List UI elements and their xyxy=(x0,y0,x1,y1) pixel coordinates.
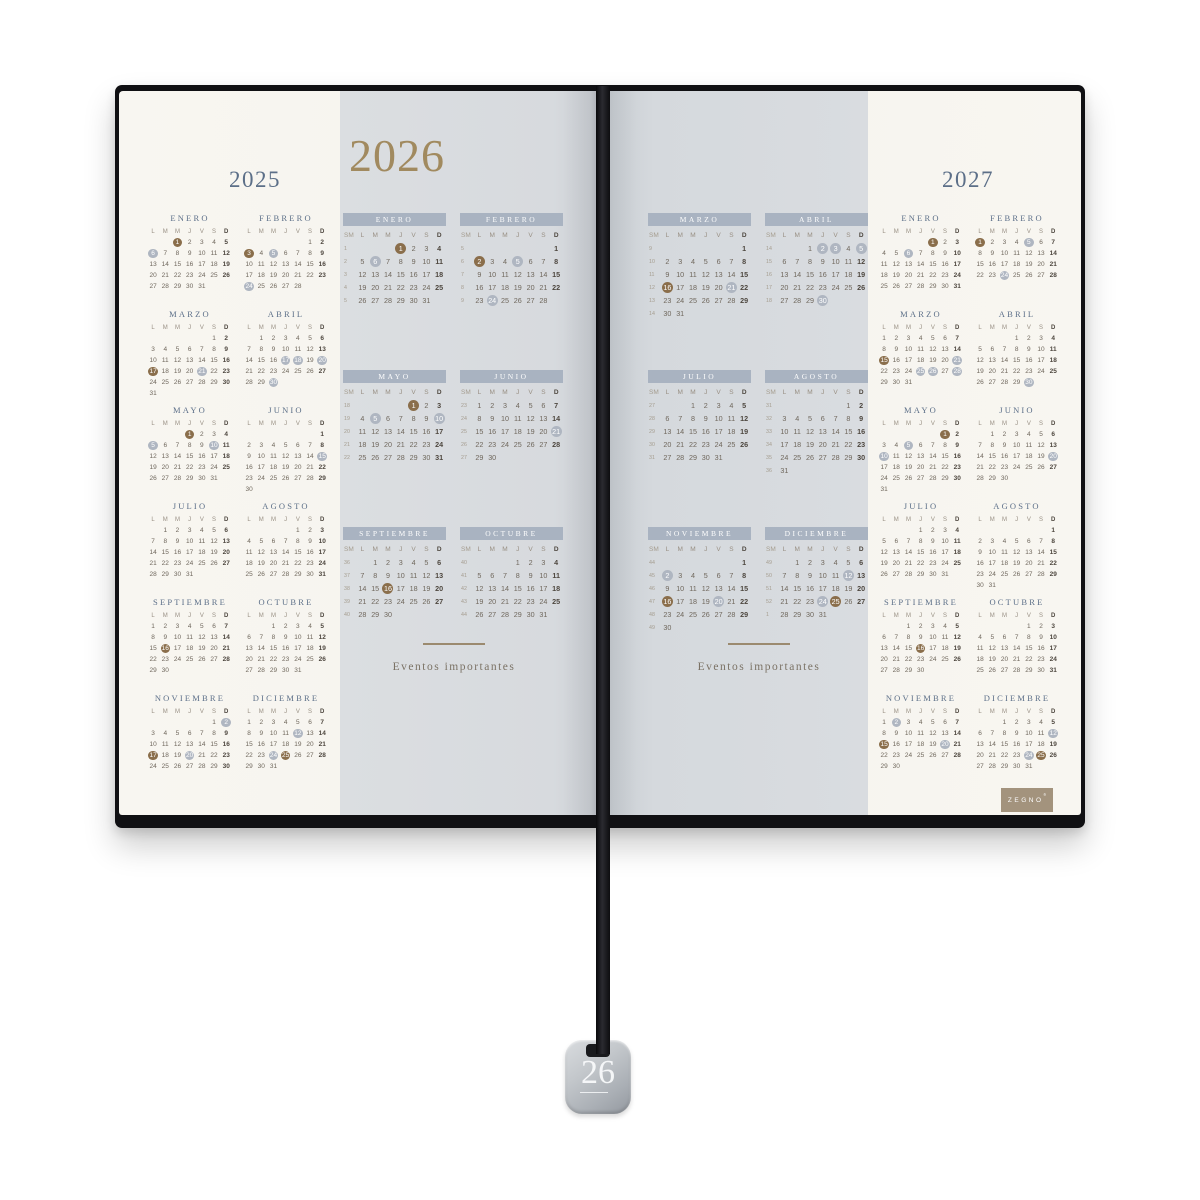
weekday-label: M xyxy=(385,389,390,396)
day-cell: 16 xyxy=(857,427,865,436)
day-cell: 3 xyxy=(200,239,204,246)
day-cell: 24 xyxy=(989,571,996,578)
month-day-grid: SMLMMJVSD1812319456789102011121314151617… xyxy=(343,386,446,464)
weekday-label: M xyxy=(677,389,682,396)
day-cell: 31 xyxy=(676,309,684,318)
day-cell: 5 xyxy=(990,634,994,641)
weekday-label: S xyxy=(729,389,733,396)
charm-number: 26 xyxy=(565,1055,631,1091)
weekday-label: L xyxy=(978,709,981,715)
day-cell: 6 xyxy=(247,634,251,641)
day-cell: 5 xyxy=(212,527,216,534)
day-cell: 24 xyxy=(817,596,828,607)
weekday-label: M xyxy=(175,709,180,715)
day-cell: 18 xyxy=(162,752,169,759)
day-cell: 23 xyxy=(198,464,205,471)
day-cell: 24 xyxy=(149,379,156,386)
day-cell: 28 xyxy=(1001,379,1008,386)
weekday-label: M xyxy=(690,232,695,239)
week-number: 45 xyxy=(648,573,655,579)
day-cell: 15 xyxy=(879,356,889,366)
day-cell: 21 xyxy=(929,464,936,471)
day-cell: 18 xyxy=(976,656,983,663)
day-cell: 27 xyxy=(857,597,865,606)
day-cell: 28 xyxy=(727,610,735,619)
month-title: FEBRERO xyxy=(974,213,1060,223)
day-cell: 14 xyxy=(198,741,205,748)
day-cell: 31 xyxy=(422,296,430,305)
day-cell: 1 xyxy=(554,244,558,253)
day-cell: 3 xyxy=(1003,239,1007,246)
day-cell: 16 xyxy=(989,261,996,268)
month-enero: ENEROLMMJVSD1234567891011121314151617181… xyxy=(147,213,233,309)
weekday-label: M xyxy=(163,421,168,427)
day-cell: 2 xyxy=(221,718,231,728)
weekday-label: M xyxy=(163,709,168,715)
day-cell: 20 xyxy=(905,272,912,279)
weekday-label: S xyxy=(308,709,312,715)
weekday-label: J xyxy=(919,229,922,235)
day-cell: 28 xyxy=(294,283,301,290)
day-cell: 1 xyxy=(846,401,850,410)
day-cell: 14 xyxy=(1013,645,1020,652)
day-cell: 14 xyxy=(198,357,205,364)
day-cell: 19 xyxy=(514,283,522,292)
day-cell: 2 xyxy=(412,244,416,253)
day-cell: 10 xyxy=(488,270,496,279)
day-cell: 9 xyxy=(859,414,863,423)
weekday-label: M xyxy=(372,546,377,553)
day-cell: 5 xyxy=(808,414,812,423)
day-cell: 30 xyxy=(941,283,948,290)
day-cell: 18 xyxy=(293,356,303,366)
day-cell: 13 xyxy=(435,571,443,580)
day-cell: 12 xyxy=(929,730,936,737)
day-cell: 11 xyxy=(211,250,218,257)
day-cell: 26 xyxy=(893,283,900,290)
day-cell: 7 xyxy=(919,250,923,257)
weekday-label: J xyxy=(821,389,824,396)
day-cell: 6 xyxy=(188,346,192,353)
day-cell: 23 xyxy=(258,752,265,759)
day-cell: 17 xyxy=(954,261,961,268)
day-cell: 15 xyxy=(245,741,252,748)
day-cell: 11 xyxy=(793,427,800,436)
weekday-label: V xyxy=(200,709,204,715)
day-cell: 19 xyxy=(976,368,983,375)
day-cell: 16 xyxy=(941,261,948,268)
month-title: OCTUBRE xyxy=(460,527,563,540)
day-cell: 4 xyxy=(554,558,558,567)
day-cell: 23 xyxy=(893,368,900,375)
day-cell: 27 xyxy=(149,283,156,290)
day-cell: 26 xyxy=(306,368,313,375)
day-cell: 9 xyxy=(224,346,228,353)
day-cell: 15 xyxy=(270,645,277,652)
week-number: 14 xyxy=(765,246,772,252)
day-cell: 1 xyxy=(373,558,377,567)
weekday-label: S xyxy=(541,232,545,239)
day-cell: 29 xyxy=(941,475,948,482)
weekday-label: L xyxy=(247,517,250,523)
day-cell: 30 xyxy=(245,486,252,493)
day-cell: 3 xyxy=(821,558,825,567)
day-cell: 27 xyxy=(989,379,996,386)
day-cell: 3 xyxy=(212,431,216,438)
day-cell: 7 xyxy=(955,335,959,342)
week-number: 52 xyxy=(765,599,772,605)
day-cell: 27 xyxy=(245,667,252,674)
week-column-header: SM xyxy=(648,546,659,553)
week-number: 35 xyxy=(765,455,772,461)
day-cell: 18 xyxy=(501,283,509,292)
day-cell: 3 xyxy=(830,243,841,254)
weekday-label: M xyxy=(259,709,264,715)
day-cell: 20 xyxy=(245,656,252,663)
day-cell: 23 xyxy=(527,597,535,606)
day-cell: 12 xyxy=(371,427,379,436)
day-cell: 26 xyxy=(928,367,938,377)
day-cell: 22 xyxy=(174,272,181,279)
day-cell: 23 xyxy=(245,475,252,482)
day-cell: 21 xyxy=(893,656,900,663)
week-number: 16 xyxy=(765,272,772,278)
week-number: 14 xyxy=(648,311,655,317)
day-cell: 11 xyxy=(689,270,696,279)
weekday-label: L xyxy=(151,421,154,427)
day-cell: 14 xyxy=(1001,357,1008,364)
day-cell: 30 xyxy=(929,571,936,578)
weekday-label: L xyxy=(666,389,670,396)
day-cell: 9 xyxy=(490,414,494,423)
month-title: OCTUBRE xyxy=(974,597,1060,607)
weekday-label: D xyxy=(955,517,959,523)
day-cell: 17 xyxy=(880,464,887,471)
weekday-label: L xyxy=(882,325,885,331)
day-cell: 24 xyxy=(487,295,498,306)
day-cell: 3 xyxy=(503,401,507,410)
weekday-label: D xyxy=(955,421,959,427)
day-cell: 5 xyxy=(424,558,428,567)
day-cell: 25 xyxy=(258,283,265,290)
weekday-label: V xyxy=(1027,325,1031,331)
weekday-label: J xyxy=(1015,229,1018,235)
day-cell: 5 xyxy=(200,623,204,630)
weekday-label: L xyxy=(151,613,154,619)
day-cell: 8 xyxy=(808,257,812,266)
day-cell: 23 xyxy=(1013,752,1020,759)
weekday-label: M xyxy=(990,517,995,523)
weekday-label: J xyxy=(284,709,287,715)
day-cell: 27 xyxy=(186,763,193,770)
day-cell: 11 xyxy=(501,270,508,279)
weekday-label: L xyxy=(478,546,482,553)
weekday-label: V xyxy=(528,232,532,239)
day-cell: 22 xyxy=(258,368,265,375)
weekday-label: V xyxy=(296,613,300,619)
day-cell: 24 xyxy=(539,597,547,606)
month-abril: ABRILLMMJVSD1234567891011121314151617181… xyxy=(243,309,329,405)
day-cell: 12 xyxy=(893,261,900,268)
day-cell: 28 xyxy=(198,379,205,386)
weekday-label: V xyxy=(716,546,720,553)
day-cell: 12 xyxy=(149,453,156,460)
weekday-label: V xyxy=(528,546,532,553)
day-cell: 13 xyxy=(282,261,289,268)
day-cell: 6 xyxy=(370,256,381,267)
day-cell: 6 xyxy=(882,634,886,641)
weekday-label: D xyxy=(437,389,442,396)
week-number: 12 xyxy=(648,285,655,291)
day-cell: 18 xyxy=(1001,560,1008,567)
calendar-grid-2025: ENEROLMMJVSD1234567891011121314151617181… xyxy=(147,213,329,789)
day-cell: 12 xyxy=(1048,729,1058,739)
day-cell: 25 xyxy=(162,379,169,386)
day-cell: 26 xyxy=(844,597,852,606)
day-cell: 26 xyxy=(198,656,205,663)
day-cell: 25 xyxy=(358,453,366,462)
weekday-label: S xyxy=(729,546,733,553)
day-cell: 18 xyxy=(258,272,265,279)
day-cell: 27 xyxy=(223,560,230,567)
day-cell: 5 xyxy=(259,538,263,545)
day-cell: 31 xyxy=(210,475,217,482)
day-cell: 30 xyxy=(198,475,205,482)
day-cell: 10 xyxy=(149,741,156,748)
day-cell: 25 xyxy=(954,560,961,567)
day-cell: 27 xyxy=(162,475,169,482)
day-cell: 27 xyxy=(1001,667,1008,674)
week-number: 10 xyxy=(648,259,655,265)
day-cell: 21 xyxy=(384,283,392,292)
day-cell: 7 xyxy=(386,257,390,266)
month-agosto: AGOSTOLMMJVSD123456789101112131415161718… xyxy=(243,501,329,597)
weekday-label: M xyxy=(807,232,812,239)
day-cell: 9 xyxy=(665,584,669,593)
day-cell: 15 xyxy=(740,270,748,279)
day-cell: 29 xyxy=(174,283,181,290)
day-cell: 20 xyxy=(780,283,788,292)
day-cell: 14 xyxy=(780,584,788,593)
month-title: DICIEMBRE xyxy=(765,527,868,540)
weekday-label: S xyxy=(943,709,947,715)
day-cell: 29 xyxy=(844,453,852,462)
day-cell: 29 xyxy=(1013,379,1020,386)
day-cell: 15 xyxy=(976,261,983,268)
day-cell: 30 xyxy=(893,379,900,386)
day-cell: 25 xyxy=(514,440,522,449)
day-cell: 17 xyxy=(1001,261,1008,268)
day-cell: 20 xyxy=(185,751,195,761)
day-cell: 30 xyxy=(306,571,313,578)
weekday-label: V xyxy=(1027,613,1031,619)
day-cell: 24 xyxy=(186,560,193,567)
day-cell: 3 xyxy=(907,719,911,726)
day-cell: 23 xyxy=(174,560,181,567)
day-cell: 9 xyxy=(477,270,481,279)
day-cell: 18 xyxy=(954,549,961,556)
weekday-label: M xyxy=(894,709,899,715)
day-cell: 17 xyxy=(715,427,723,436)
week-number: 40 xyxy=(343,612,350,618)
day-cell: 14 xyxy=(258,645,265,652)
day-cell: 27 xyxy=(663,453,671,462)
day-cell: 28 xyxy=(319,752,326,759)
day-cell: 2 xyxy=(200,431,204,438)
day-cell: 13 xyxy=(539,414,547,423)
month-title: NOVIEMBRE xyxy=(648,527,751,540)
day-cell: 26 xyxy=(514,296,522,305)
day-cell: 16 xyxy=(258,741,265,748)
day-cell: 19 xyxy=(1037,453,1044,460)
day-cell: 30 xyxy=(527,610,535,619)
day-cell: 20 xyxy=(210,645,217,652)
weekday-label: M xyxy=(1002,325,1007,331)
week-number: 36 xyxy=(343,560,350,566)
day-cell: 19 xyxy=(282,464,289,471)
week-number: 31 xyxy=(648,455,655,461)
zegno-logo-text: ZEGNO xyxy=(1008,797,1044,804)
day-cell: 5 xyxy=(529,401,533,410)
week-number: 20 xyxy=(343,429,350,435)
weekday-label: M xyxy=(502,232,507,239)
day-cell: 18 xyxy=(893,464,900,471)
day-cell: 21 xyxy=(539,283,547,292)
day-cell: 1 xyxy=(928,238,938,248)
day-cell: 19 xyxy=(844,584,852,593)
day-cell: 16 xyxy=(488,427,496,436)
day-cell: 17 xyxy=(397,584,405,593)
day-cell: 18 xyxy=(198,549,205,556)
day-cell: 19 xyxy=(527,427,535,436)
weekday-label: J xyxy=(1015,709,1018,715)
day-cell: 16 xyxy=(662,596,673,607)
weekday-label: D xyxy=(554,232,559,239)
weekday-label: J xyxy=(704,546,707,553)
weekday-label: M xyxy=(807,389,812,396)
day-cell: 2 xyxy=(978,538,982,545)
day-cell: 27 xyxy=(941,368,948,375)
weekday-label: J xyxy=(1015,421,1018,427)
day-cell: 11 xyxy=(162,741,169,748)
day-cell: 26 xyxy=(174,379,181,386)
day-cell: 1 xyxy=(691,401,695,410)
day-cell: 17 xyxy=(989,560,996,567)
month-day-grid: SMLMMJVSD5162345678791011121314158161718… xyxy=(460,229,563,307)
day-cell: 5 xyxy=(308,335,312,342)
weekday-label: D xyxy=(554,389,559,396)
day-cell: 23 xyxy=(819,283,827,292)
day-cell: 4 xyxy=(691,571,695,580)
week-number: 11 xyxy=(648,272,655,278)
weekday-label: M xyxy=(259,325,264,331)
day-cell: 2 xyxy=(808,558,812,567)
month-title: ENERO xyxy=(878,213,964,223)
day-cell: 11 xyxy=(689,584,696,593)
day-cell: 2 xyxy=(1027,335,1031,342)
day-cell: 9 xyxy=(412,257,416,266)
day-cell: 8 xyxy=(554,257,558,266)
weekday-label: L xyxy=(666,232,670,239)
day-cell: 5 xyxy=(704,257,708,266)
day-cell: 4 xyxy=(212,239,216,246)
day-cell: 18 xyxy=(282,741,289,748)
month-title: AGOSTO xyxy=(765,370,868,383)
day-cell: 22 xyxy=(806,283,814,292)
day-cell: 14 xyxy=(149,549,156,556)
weekday-label: J xyxy=(188,517,191,523)
day-cell: 5 xyxy=(894,250,898,257)
day-cell: 12 xyxy=(210,538,217,545)
day-cell: 1 xyxy=(882,335,886,342)
day-cell: 23 xyxy=(270,368,277,375)
events-label: Eventos importantes xyxy=(648,661,870,673)
day-cell: 25 xyxy=(552,597,560,606)
day-cell: 18 xyxy=(917,357,924,364)
weekday-label: J xyxy=(919,517,922,523)
day-cell: 24 xyxy=(282,368,289,375)
day-cell: 13 xyxy=(1001,645,1008,652)
day-cell: 25 xyxy=(162,763,169,770)
month-mayo: MAYOSMLMMJVSD181231945678910201112131415… xyxy=(343,370,446,527)
day-cell: 8 xyxy=(373,571,377,580)
month-septiembre: SEPTIEMBRELMMJVSD12345678910111213141516… xyxy=(878,597,964,693)
day-cell: 30 xyxy=(954,475,961,482)
events-divider xyxy=(423,643,485,645)
weekday-label: V xyxy=(1027,517,1031,523)
day-cell: 29 xyxy=(319,475,326,482)
week-number: 18 xyxy=(343,403,350,409)
weekday-label: V xyxy=(200,613,204,619)
day-cell: 26 xyxy=(475,610,483,619)
day-cell: 9 xyxy=(665,270,669,279)
day-cell: 26 xyxy=(976,379,983,386)
day-cell: 15 xyxy=(879,740,889,750)
weekday-label: M xyxy=(1002,709,1007,715)
day-cell: 28 xyxy=(893,667,900,674)
day-cell: 12 xyxy=(702,270,710,279)
day-cell: 14 xyxy=(397,427,405,436)
weekday-label: S xyxy=(943,613,947,619)
weekday-label: D xyxy=(1051,517,1055,523)
weekday-label: M xyxy=(271,325,276,331)
day-cell: 12 xyxy=(270,261,277,268)
day-cell: 3 xyxy=(990,538,994,545)
day-cell: 8 xyxy=(907,634,911,641)
day-cell: 7 xyxy=(894,634,898,641)
day-cell: 16 xyxy=(422,427,430,436)
month-junio: JUNIOLMMJVSD1234567891011121314151617181… xyxy=(243,405,329,501)
day-cell: 24 xyxy=(941,560,948,567)
day-cell: 9 xyxy=(529,571,533,580)
day-cell: 28 xyxy=(727,296,735,305)
day-cell: 17 xyxy=(1013,453,1020,460)
weekday-label: M xyxy=(271,229,276,235)
day-cell: 3 xyxy=(437,401,441,410)
day-cell: 23 xyxy=(1001,464,1008,471)
day-cell: 8 xyxy=(1027,634,1031,641)
day-cell: 19 xyxy=(1013,560,1020,567)
day-cell: 21 xyxy=(676,440,684,449)
day-cell: 15 xyxy=(306,261,313,268)
day-cell: 9 xyxy=(284,634,288,641)
day-cell: 22 xyxy=(270,656,277,663)
day-cell: 17 xyxy=(488,283,496,292)
day-cell: 9 xyxy=(1027,346,1031,353)
day-cell: 25 xyxy=(893,475,900,482)
day-cell: 1 xyxy=(1015,335,1019,342)
month-day-grid: LMMJVSD123456789101112131415161718192021… xyxy=(243,226,329,292)
